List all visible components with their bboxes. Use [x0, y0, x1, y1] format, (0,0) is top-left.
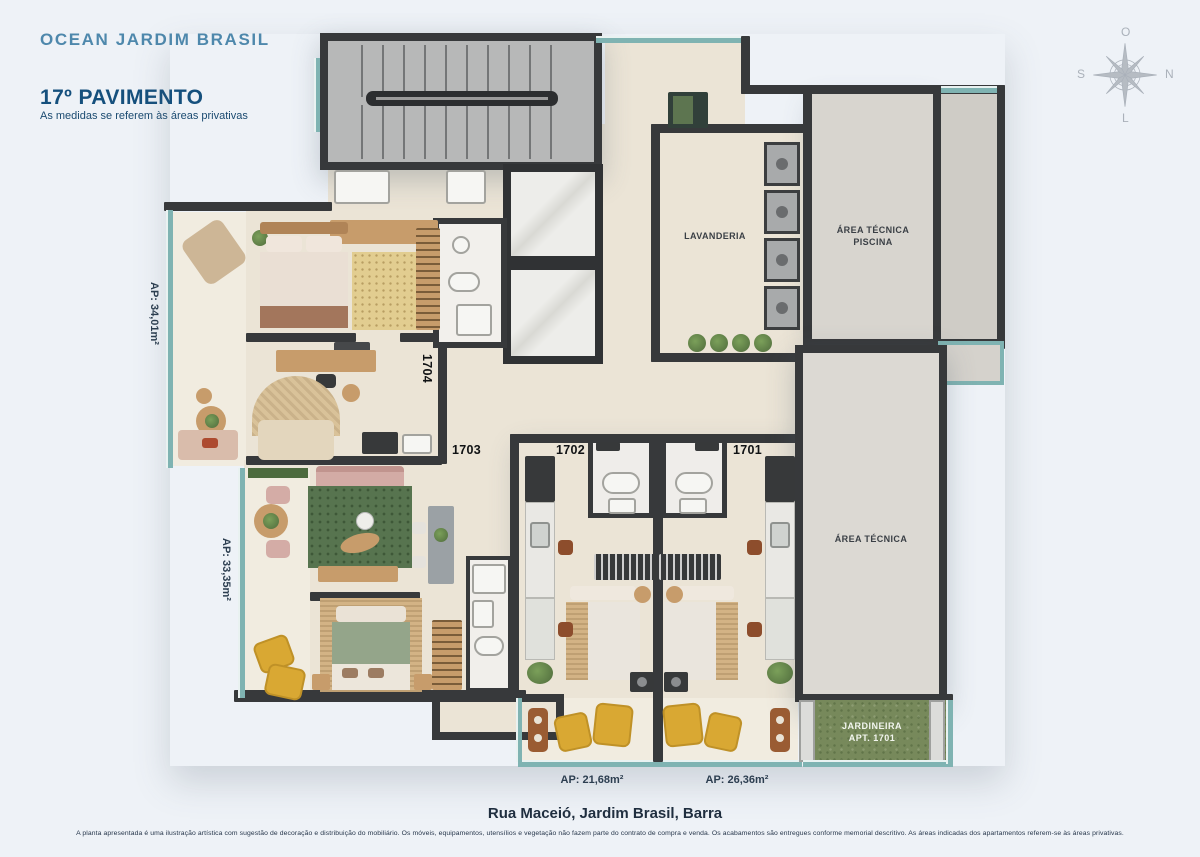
bar-cart-1702 — [528, 708, 548, 752]
stool-1-1701 — [747, 540, 762, 555]
sink-1704 — [402, 434, 432, 454]
tv-console-1703 — [318, 566, 398, 582]
wc-shower — [456, 304, 492, 336]
stair-treads-lower — [342, 105, 554, 159]
stair-treads-upper — [342, 45, 554, 97]
service-protrusion — [938, 341, 1004, 385]
washer-3 — [764, 238, 800, 282]
wall-lavanderia-bottom — [651, 353, 812, 362]
bed-1704 — [260, 222, 348, 328]
glass-1703-balcony — [238, 468, 245, 698]
stool-2-1701 — [747, 622, 762, 637]
wall-right-outer — [997, 85, 1005, 349]
pillar-left — [799, 700, 815, 762]
elevator-shaft-1 — [503, 164, 603, 264]
bed-1703 — [332, 602, 410, 690]
glass-1704-balcony — [166, 210, 173, 468]
elevator-shaft-2 — [503, 262, 603, 364]
area-tecnica-piscina-floor — [812, 94, 934, 339]
appliances-1701 — [765, 456, 795, 502]
area-tecnica-label: ÁREA TÉCNICA — [795, 532, 947, 548]
area-tecnica-piscina-label: ÁREA TÉCNICAPISCINA — [812, 222, 934, 252]
compass-south-label: S — [1077, 67, 1085, 81]
washer-2 — [764, 190, 800, 234]
unit-number-1702: 1702 — [556, 443, 585, 457]
wardrobe-1704 — [416, 228, 440, 330]
area-label-1702: AP: 21,68m² — [537, 772, 647, 788]
wardrobe-1701 — [659, 554, 721, 580]
wall-strip-divider — [933, 85, 941, 347]
glass-strip-top — [941, 86, 1001, 93]
nightstand-1-1703 — [312, 674, 330, 690]
tray-table-1703 — [356, 512, 374, 530]
bench-cushion-1704 — [202, 438, 218, 448]
glass-top-hall — [596, 36, 748, 43]
wall-balcony-divider — [653, 698, 663, 762]
right-service-strip-floor — [941, 94, 997, 339]
stool-2-1702 — [558, 622, 573, 637]
wall-1704-corridor — [438, 340, 447, 464]
compass-east-label: L — [1122, 111, 1129, 125]
lounge-chair-1-1702 — [553, 711, 594, 753]
side-table-1702 — [634, 586, 651, 603]
jardineira-label: JARDINEIRAAPT. 1701 — [815, 718, 929, 746]
lavanderia-plant-4 — [754, 334, 772, 352]
disclaimer: A planta apresentada é uma ilustração ar… — [0, 830, 1200, 837]
kitchen-sink-1701 — [770, 522, 790, 548]
area-label-1703: AP: 33,35m² — [220, 538, 232, 601]
nightstand-2-1703 — [414, 674, 432, 690]
side-table-1701 — [666, 586, 683, 603]
shower-head-1702 — [596, 442, 620, 451]
storage-room-b — [446, 170, 486, 204]
bath-vanity-1701 — [679, 498, 707, 514]
pillar-right — [929, 700, 945, 762]
bar-cart-1701 — [770, 708, 790, 752]
compass-north-label: N — [1165, 67, 1174, 81]
desk-1704 — [276, 350, 376, 372]
unit-number-1703: 1703 — [452, 443, 481, 457]
hall-desk — [668, 92, 708, 128]
counter-1701 — [765, 502, 795, 598]
bed-1702 — [566, 584, 640, 680]
balcony-plant-1704 — [205, 414, 219, 428]
wc-toilet — [448, 272, 480, 292]
lavanderia-plant-3 — [732, 334, 750, 352]
balcony-plant-1703 — [263, 513, 279, 529]
area-tecnica — [795, 345, 947, 702]
kitchen-plant-1702 — [527, 662, 553, 684]
address: Rua Maceió, Jardim Brasil, Barra — [160, 805, 1050, 822]
bath-vanity-1702 — [608, 498, 636, 514]
lavanderia-plant-1 — [688, 334, 706, 352]
washer-4 — [764, 286, 800, 330]
area-label-1701: AP: 26,36m² — [682, 772, 792, 788]
planter-1703 — [248, 468, 308, 478]
glass-jardineira-bottom — [803, 760, 953, 767]
appliances-1702 — [525, 456, 555, 502]
balcony-chair-1-1703 — [266, 486, 290, 504]
compass-rose-icon — [1089, 39, 1161, 111]
stool-1-1702 — [558, 540, 573, 555]
island-chair-1-1703 — [412, 522, 426, 534]
compass: O N S L — [1075, 25, 1175, 125]
glass-jardineira-right — [946, 700, 953, 764]
counter-1702 — [525, 502, 555, 598]
side-table-1704 — [342, 384, 360, 402]
shower-1703 — [472, 564, 506, 594]
shower-head-1701 — [695, 442, 719, 451]
stove-1704 — [362, 432, 398, 454]
toilet-1703 — [474, 636, 504, 656]
storage-room-a — [334, 170, 390, 204]
bench-1702 — [630, 672, 654, 692]
bench-1701 — [664, 672, 688, 692]
floor-plan-page: { "header": { "project": "OCEAN JARDIM B… — [0, 0, 1200, 857]
unit-number-1701: 1701 — [733, 443, 762, 457]
lounge-chair-1-1701 — [662, 702, 704, 748]
stairwell — [320, 33, 602, 170]
unit-number-1704: 1704 — [420, 354, 434, 383]
kitchen-plant-1701 — [767, 662, 793, 684]
wardrobe-1702 — [594, 554, 656, 580]
kitchen-sink-1702 — [530, 522, 550, 548]
glass-units-balcony-left — [516, 698, 522, 762]
wc-sink — [452, 236, 470, 254]
island-chair-2-1703 — [412, 556, 426, 568]
stair-handrail — [366, 91, 558, 106]
island-plant-1703 — [434, 528, 448, 542]
lavanderia-label: LAVANDERIA — [656, 230, 774, 244]
wardrobe-1703 — [432, 620, 462, 690]
lounge-chair-2-1702 — [592, 702, 634, 748]
lavanderia-plant-2 — [710, 334, 728, 352]
counter-low-1701 — [765, 598, 795, 660]
glass-stair-left — [314, 58, 320, 132]
arch-sofa-seat-1704 — [258, 420, 334, 460]
balcony-stool-1704 — [196, 388, 212, 404]
wall-1704-top — [164, 202, 332, 211]
tub-1702 — [602, 472, 640, 494]
area-label-1704: AP: 34,01m² — [148, 282, 160, 345]
wall-1704-bedroom-a — [246, 333, 356, 342]
vanity-1703 — [472, 600, 494, 628]
tub-1701 — [675, 472, 713, 494]
washer-1 — [764, 142, 800, 186]
counter-low-1702 — [525, 598, 555, 660]
island-1703 — [428, 506, 454, 584]
compass-west-label: O — [1121, 25, 1130, 39]
balcony-chair-2-1703 — [266, 540, 290, 558]
